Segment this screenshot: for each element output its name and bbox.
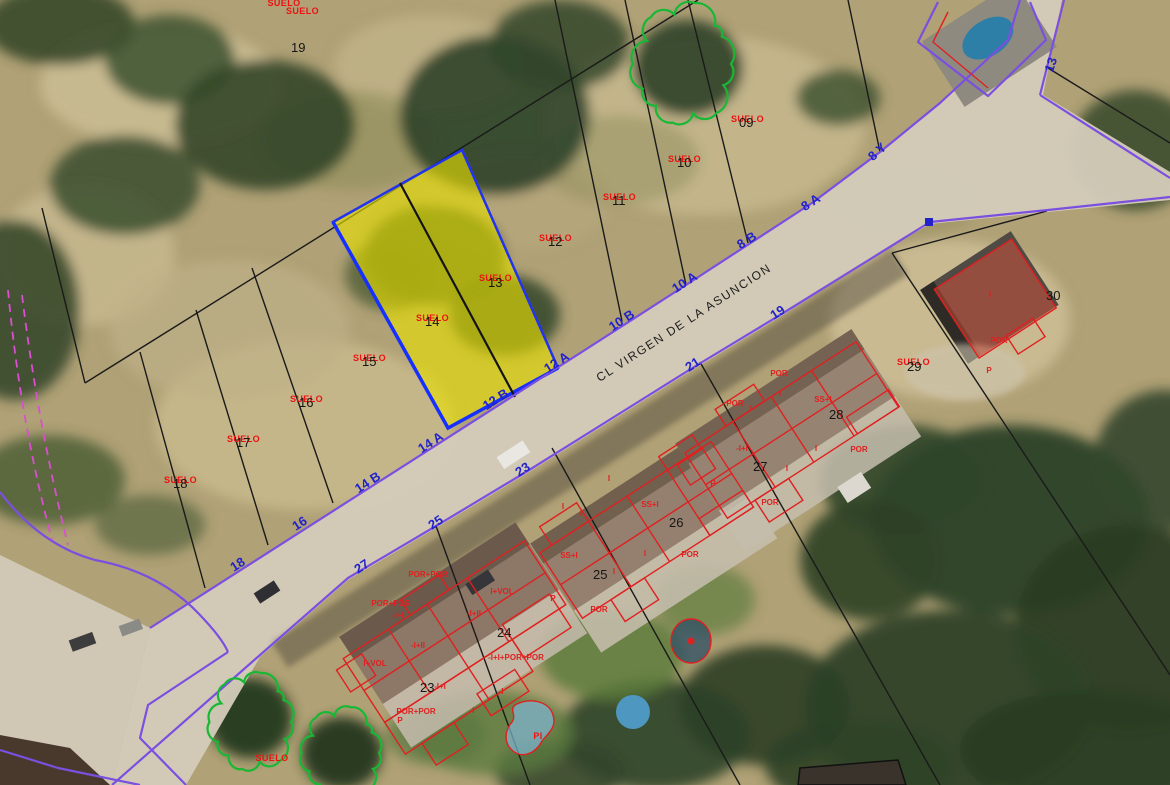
parcel-number-label: 27 [753, 459, 767, 474]
construction-code-label: POR+POR [408, 570, 448, 579]
boundary-vertex-marker [925, 218, 933, 226]
construction-code-label: POR [681, 550, 699, 559]
construction-code-label: I [779, 389, 781, 398]
construction-code-label: P [710, 479, 716, 488]
construction-code-label: SS+I [560, 551, 578, 560]
construction-code-label: POR+POR [396, 707, 436, 716]
parcel-number-label: 17 [236, 435, 250, 450]
construction-code-label: I [580, 509, 582, 518]
parcel-number-label: 14 [425, 314, 439, 329]
parcel-number-label: 26 [669, 515, 683, 530]
satellite-terrain [0, 0, 1170, 785]
construction-code-label: I [608, 474, 610, 483]
construction-code-label: POR [590, 605, 608, 614]
construction-code-label: POR [726, 399, 744, 408]
parcel-number-label: 29 [907, 359, 921, 374]
construction-code-label: I [644, 549, 646, 558]
construction-code-label: I+VOL [363, 659, 386, 668]
cadastral-map-viewport[interactable]: CL VIRGEN DE LA ASUNCION SUELO19SUELO09S… [0, 0, 1170, 785]
parcel-number-label: 24 [497, 625, 511, 640]
parcel-number-label: 13 [488, 275, 502, 290]
construction-code-label: -I [499, 687, 504, 696]
parcel-number-label: 09 [739, 115, 753, 130]
ground-label: PI [533, 731, 542, 741]
construction-code-label: -I+II [467, 609, 481, 618]
construction-code-label: POR [850, 445, 868, 454]
construction-code-label: POR [990, 336, 1008, 345]
construction-code-label: I [815, 444, 817, 453]
construction-code-label: -I+I+POR+POR [488, 653, 544, 662]
construction-code-label: SS+I [641, 500, 659, 509]
construction-code-label: -I+I [434, 682, 446, 691]
construction-code-label: -I+I [736, 444, 748, 453]
parcel-number-label: 16 [299, 395, 313, 410]
parcel-number-label: 11 [612, 193, 626, 208]
parcel-number-label: 15 [362, 354, 376, 369]
parcel-number-label: 12 [548, 234, 562, 249]
parcel-number-label: 28 [829, 407, 843, 422]
parcel-number-label: 23 [420, 680, 434, 695]
construction-code-label: I [562, 502, 564, 511]
construction-code-label: I [786, 464, 788, 473]
construction-code-label: -I+II [411, 641, 425, 650]
round-pool [616, 695, 650, 729]
construction-code-label: POR [770, 369, 788, 378]
parcel-number-label: 25 [593, 567, 607, 582]
construction-code-label: -I [470, 706, 475, 715]
cadastral-map-svg: CL VIRGEN DE LA ASUNCION SUELO19SUELO09S… [0, 0, 1170, 785]
construction-code-label: POR [761, 498, 779, 507]
construction-code-label: I [989, 290, 991, 299]
construction-code-label: -I+I [392, 611, 404, 620]
construction-code-label: P [397, 716, 403, 725]
parcel-number-label: 19 [291, 40, 305, 55]
parcel-number-label: 10 [677, 155, 691, 170]
ground-label: SUELO [267, 0, 300, 8]
construction-code-label: P [986, 366, 992, 375]
construction-code-label: I+VOL [490, 587, 513, 596]
ground-label: SUELO [255, 753, 288, 763]
construction-code-label: I [750, 404, 752, 413]
construction-code-label: P [550, 594, 556, 603]
parcel-number-label: 18 [173, 476, 187, 491]
construction-code-label: I [613, 567, 615, 576]
construction-code-label: POR+POR [371, 599, 411, 608]
construction-code-label: SS+I [814, 395, 832, 404]
parcel-number-label: 30 [1046, 288, 1060, 303]
